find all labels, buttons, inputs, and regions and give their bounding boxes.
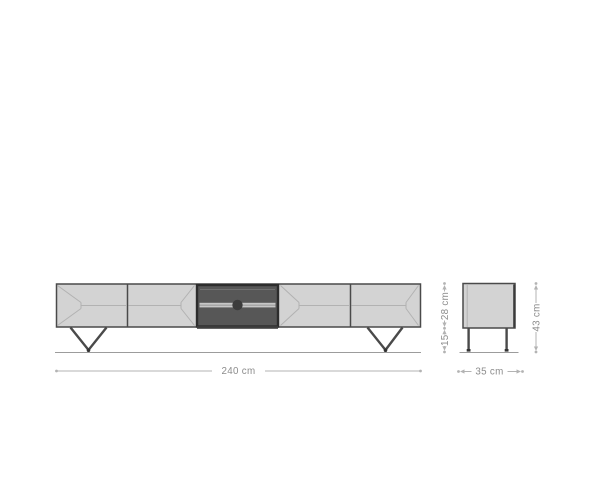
leg-height-label: 15 bbox=[440, 334, 451, 346]
side-view: 28 cm 15 43 cm bbox=[440, 282, 543, 378]
left-leg-foot bbox=[87, 349, 91, 353]
front-width-label: 240 cm bbox=[222, 366, 256, 377]
body-height-dimension: 28 cm bbox=[440, 282, 451, 330]
depth-dimension: 35 cm bbox=[457, 367, 524, 378]
front-left-v-leg bbox=[71, 328, 107, 353]
total-height-dimension: 43 cm bbox=[531, 282, 542, 353]
total-height-label: 43 cm bbox=[531, 303, 542, 331]
furniture-dimension-diagram: 240 cm bbox=[0, 0, 600, 500]
right-leg-foot bbox=[384, 349, 388, 353]
front-view: 240 cm bbox=[55, 284, 422, 377]
front-width-dimension: 240 cm bbox=[55, 366, 422, 377]
leg-height-dimension: 15 bbox=[440, 330, 451, 354]
open-compartment bbox=[197, 285, 278, 329]
depth-label: 35 cm bbox=[475, 367, 503, 378]
side-cabinet-body bbox=[463, 284, 515, 329]
diagram-canvas: 240 cm bbox=[0, 0, 600, 500]
compartment-knob bbox=[232, 300, 242, 310]
front-right-v-leg bbox=[368, 328, 403, 353]
side-legs bbox=[467, 328, 509, 352]
side-front-foot bbox=[467, 349, 471, 352]
compartment-base bbox=[197, 326, 278, 329]
body-height-label: 28 cm bbox=[440, 292, 451, 320]
side-back-foot bbox=[505, 349, 509, 352]
